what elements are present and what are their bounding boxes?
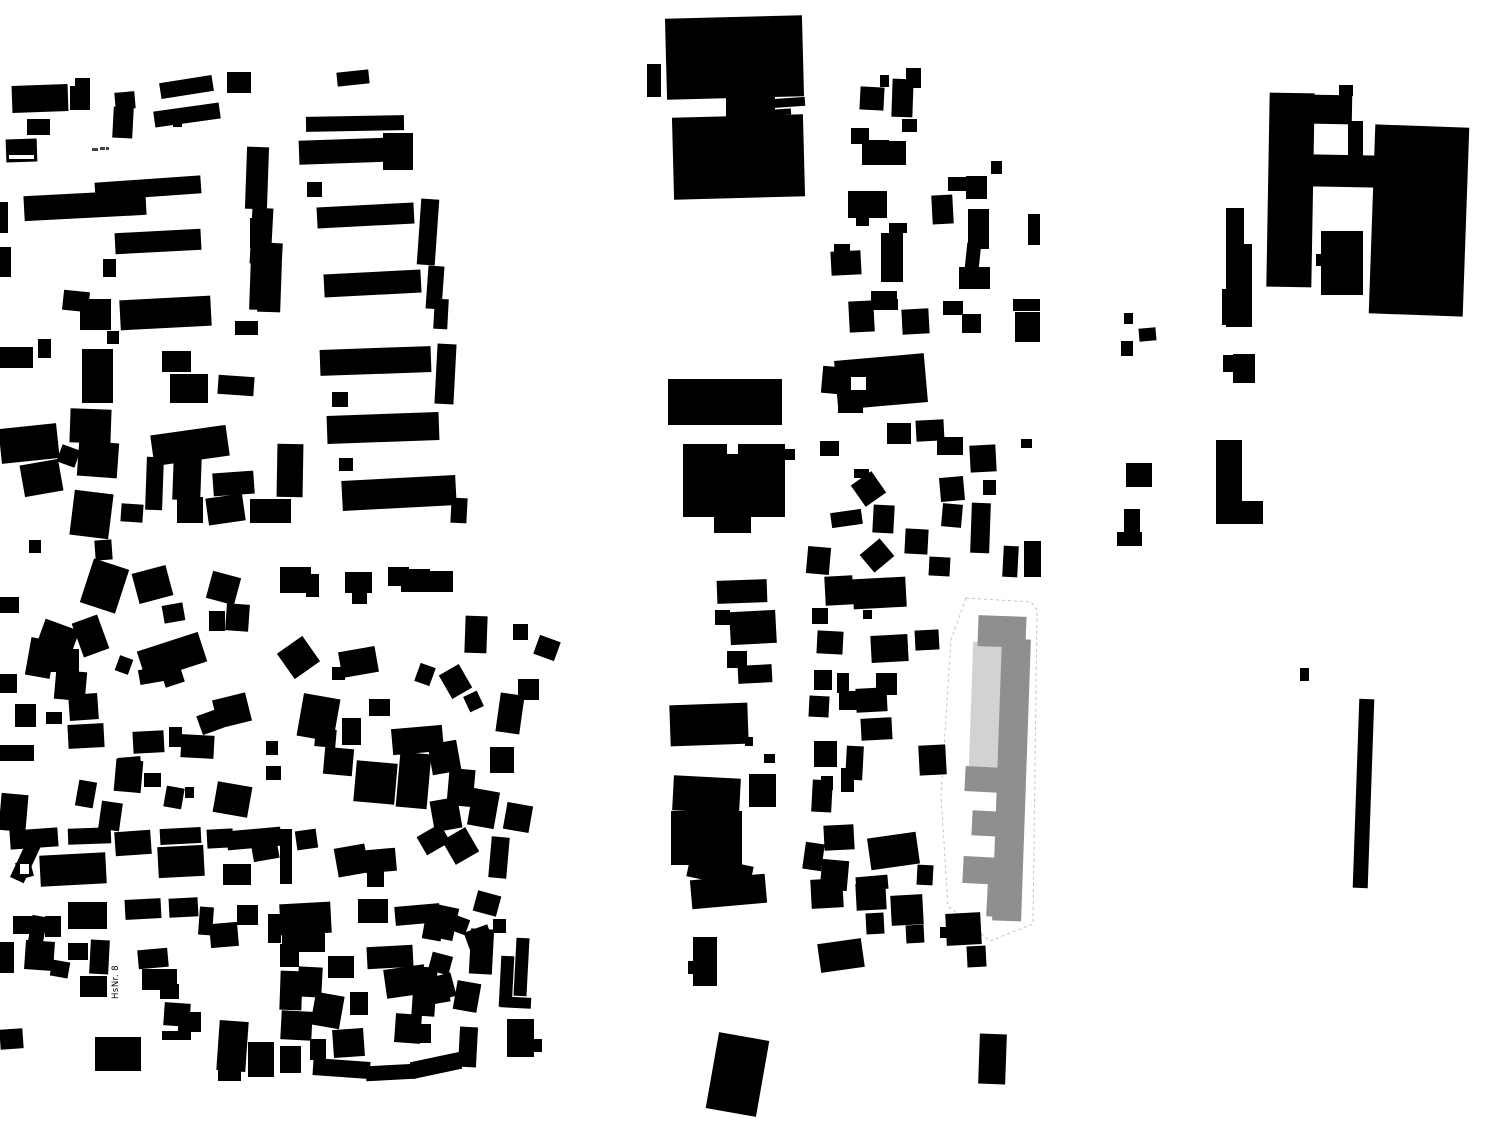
building-footprint bbox=[218, 1069, 241, 1081]
building-footprint bbox=[824, 575, 853, 605]
building-footprint bbox=[334, 844, 370, 878]
house-number-label: HsNr. 8 bbox=[111, 965, 121, 999]
building-footprint bbox=[1138, 327, 1156, 341]
building-footprint bbox=[250, 218, 261, 248]
building-footprint bbox=[114, 830, 152, 856]
building-footprint bbox=[943, 301, 963, 315]
building-footprint bbox=[764, 754, 775, 763]
building-footprint bbox=[1015, 312, 1040, 342]
building-footprint bbox=[715, 610, 730, 625]
building-footprint bbox=[837, 673, 849, 693]
building-footprint bbox=[464, 616, 487, 654]
building-footprint bbox=[821, 366, 852, 395]
building-footprint bbox=[860, 717, 892, 741]
building-footprint bbox=[394, 1013, 422, 1044]
building-footprint bbox=[863, 610, 872, 619]
building-footprint bbox=[180, 734, 214, 759]
site-building-dark bbox=[962, 856, 1004, 885]
building-footprint bbox=[817, 938, 865, 973]
building-footprint bbox=[144, 773, 161, 787]
building-footprint bbox=[1024, 541, 1041, 577]
building-footprint bbox=[369, 699, 390, 716]
building-footprint bbox=[249, 258, 279, 311]
building-footprint bbox=[306, 574, 319, 597]
building-footprint bbox=[729, 610, 777, 645]
building-footprint bbox=[75, 78, 90, 110]
building-footprint bbox=[280, 829, 292, 884]
building-footprint bbox=[162, 602, 186, 623]
building-footprint bbox=[453, 980, 482, 1013]
building-footprint bbox=[1266, 93, 1314, 288]
building-footprint bbox=[266, 766, 281, 780]
building-footprint bbox=[280, 1046, 301, 1073]
building-footprint bbox=[966, 176, 987, 199]
building-footprint bbox=[865, 913, 884, 935]
building-footprint bbox=[966, 946, 986, 968]
tiny-text-mark bbox=[106, 147, 109, 150]
building-footprint bbox=[366, 1064, 417, 1082]
building-footprint bbox=[814, 670, 832, 690]
building-footprint bbox=[816, 630, 843, 654]
building-courtyard bbox=[20, 864, 29, 874]
building-footprint bbox=[39, 852, 107, 886]
building-footprint bbox=[137, 948, 169, 970]
building-footprint bbox=[245, 147, 269, 210]
building-footprint bbox=[401, 569, 430, 592]
building-footprint bbox=[887, 423, 911, 444]
building-footprint bbox=[978, 1034, 1007, 1085]
figure-ground-map: HsNr. 8 bbox=[0, 0, 1500, 1135]
building-footprint bbox=[68, 943, 88, 960]
building-footprint bbox=[488, 836, 510, 878]
building-footprint bbox=[277, 444, 304, 497]
building-footprint bbox=[1223, 355, 1233, 372]
building-footprint bbox=[1310, 95, 1352, 125]
building-footprint bbox=[162, 1031, 191, 1040]
building-footprint bbox=[871, 299, 898, 310]
building-footprint bbox=[169, 727, 182, 747]
building-footprint bbox=[1321, 231, 1363, 295]
building-footprint bbox=[310, 992, 344, 1030]
building-footprint bbox=[1311, 154, 1379, 187]
building-footprint bbox=[812, 608, 828, 624]
building-footprint bbox=[870, 634, 908, 663]
building-footprint bbox=[1241, 501, 1263, 524]
building-footprint bbox=[738, 664, 773, 684]
building-footprint bbox=[1124, 313, 1133, 324]
building-footprint bbox=[500, 996, 532, 1009]
building-footprint bbox=[507, 1019, 534, 1057]
building-footprint bbox=[0, 942, 14, 973]
building-footprint bbox=[306, 115, 404, 132]
building-footprint bbox=[112, 106, 134, 138]
building-footprint bbox=[683, 444, 785, 517]
building-footprint bbox=[49, 649, 79, 672]
building-footprint bbox=[225, 603, 250, 632]
building-footprint bbox=[280, 1010, 312, 1041]
building-footprint bbox=[237, 905, 258, 925]
building-footprint bbox=[46, 712, 62, 724]
site-building-dark bbox=[986, 883, 1018, 918]
building-footprint bbox=[332, 392, 348, 407]
building-footprint bbox=[830, 250, 861, 276]
building-footprint bbox=[959, 267, 990, 289]
building-footprint bbox=[811, 779, 833, 812]
building-footprint bbox=[916, 865, 933, 886]
building-footprint bbox=[89, 940, 110, 975]
building-footprint bbox=[227, 72, 251, 93]
building-footprint bbox=[160, 827, 202, 845]
building-footprint bbox=[672, 775, 741, 813]
building-footprint bbox=[295, 829, 318, 851]
building-footprint bbox=[810, 878, 843, 909]
building-footprint bbox=[162, 351, 191, 372]
building-footprint bbox=[250, 499, 291, 523]
building-footprint bbox=[250, 837, 279, 862]
building-footprint bbox=[50, 960, 71, 979]
building-footprint bbox=[518, 679, 539, 700]
building-footprint bbox=[906, 925, 925, 944]
building-footprint bbox=[223, 864, 251, 885]
building-footprint bbox=[279, 971, 302, 1011]
building-footprint bbox=[490, 747, 514, 773]
building-footprint bbox=[352, 589, 367, 604]
building-footprint bbox=[745, 737, 753, 746]
building-footprint bbox=[1013, 299, 1040, 311]
building-footprint bbox=[0, 247, 11, 277]
building-footprint bbox=[213, 781, 253, 818]
building-footprint bbox=[69, 408, 111, 443]
building-footprint bbox=[94, 539, 112, 560]
building-footprint bbox=[880, 75, 889, 87]
building-footprint bbox=[647, 64, 661, 97]
building-footprint bbox=[929, 556, 951, 576]
building-footprint bbox=[69, 490, 113, 539]
building-footprint bbox=[0, 597, 19, 613]
building-footprint bbox=[172, 456, 202, 501]
building-footprint bbox=[120, 503, 143, 522]
building-footprint bbox=[1002, 546, 1019, 578]
building-footprint bbox=[669, 703, 748, 747]
tiny-text-mark bbox=[92, 148, 98, 151]
building-footprint bbox=[862, 140, 889, 165]
building-footprint bbox=[82, 349, 113, 403]
building-footprint bbox=[80, 976, 107, 997]
building-footprint bbox=[881, 233, 903, 282]
building-footprint bbox=[838, 398, 863, 413]
building-footprint bbox=[939, 476, 965, 502]
building-footprint bbox=[266, 741, 278, 755]
building-courtyard bbox=[727, 444, 738, 454]
building-footprint bbox=[163, 786, 184, 810]
building-footprint bbox=[157, 845, 205, 878]
building-footprint bbox=[205, 494, 245, 526]
building-footprint bbox=[29, 540, 41, 553]
building-footprint bbox=[341, 475, 456, 511]
building-footprint bbox=[107, 331, 119, 344]
building-footprint bbox=[115, 229, 202, 254]
building-footprint bbox=[280, 944, 299, 967]
building-footprint bbox=[1300, 668, 1309, 681]
building-footprint bbox=[876, 673, 897, 695]
building-footprint bbox=[173, 116, 182, 127]
building-footprint bbox=[841, 768, 854, 792]
building-footprint bbox=[67, 723, 104, 749]
building-footprint bbox=[119, 296, 211, 331]
building-footprint bbox=[358, 899, 388, 923]
building-footprint bbox=[1316, 254, 1324, 266]
tiny-text-mark bbox=[100, 147, 105, 150]
building-footprint bbox=[906, 68, 921, 88]
building-footprint bbox=[781, 449, 795, 460]
building-footprint bbox=[533, 1039, 542, 1052]
building-footprint bbox=[888, 141, 906, 165]
building-footprint bbox=[458, 1027, 478, 1068]
building-footprint bbox=[45, 916, 61, 937]
building-footprint bbox=[27, 119, 50, 135]
building-footprint bbox=[433, 299, 449, 330]
building-footprint bbox=[310, 1039, 326, 1060]
building-footprint bbox=[209, 922, 239, 948]
building-footprint bbox=[1021, 439, 1032, 448]
building-footprint bbox=[513, 624, 528, 640]
building-footprint bbox=[132, 730, 164, 754]
building-footprint bbox=[327, 412, 440, 444]
building-footprint bbox=[328, 956, 354, 978]
building-footprint bbox=[1348, 121, 1363, 158]
building-footprint bbox=[77, 441, 119, 479]
building-footprint bbox=[209, 611, 225, 631]
building-footprint bbox=[68, 902, 107, 929]
building-footprint bbox=[95, 1037, 141, 1071]
building-footprint bbox=[668, 379, 782, 425]
building-footprint bbox=[714, 514, 751, 533]
building-footprint bbox=[160, 984, 179, 999]
building-footprint bbox=[0, 793, 29, 832]
building-footprint bbox=[350, 992, 368, 1015]
building-footprint bbox=[0, 674, 17, 693]
building-footprint bbox=[814, 741, 837, 767]
building-footprint bbox=[717, 579, 768, 604]
building-footprint bbox=[970, 503, 991, 554]
building-footprint bbox=[872, 504, 894, 533]
building-footprint bbox=[904, 528, 928, 554]
building-footprint bbox=[169, 897, 199, 917]
building-footprint bbox=[852, 577, 906, 610]
building-footprint bbox=[217, 375, 254, 396]
building-footprint bbox=[665, 15, 804, 100]
building-footprint bbox=[216, 1020, 248, 1072]
building-footprint bbox=[962, 314, 981, 333]
building-footprint bbox=[103, 259, 116, 277]
building-footprint bbox=[1121, 341, 1133, 356]
site-building-dark bbox=[971, 810, 1001, 836]
building-footprint bbox=[940, 927, 949, 938]
building-footprint bbox=[367, 869, 384, 887]
building-footprint bbox=[248, 1042, 274, 1077]
building-footprint bbox=[20, 459, 64, 497]
building-footprint bbox=[342, 718, 361, 745]
building-footprint bbox=[428, 981, 450, 1005]
building-footprint bbox=[855, 882, 886, 911]
building-footprint bbox=[15, 704, 36, 727]
building-footprint bbox=[991, 161, 1002, 174]
building-footprint bbox=[1369, 124, 1470, 316]
building-footprint bbox=[1117, 532, 1142, 546]
building-footprint bbox=[38, 339, 51, 358]
building-footprint bbox=[68, 693, 99, 721]
building-footprint bbox=[353, 760, 397, 804]
building-footprint bbox=[1222, 289, 1246, 325]
building-footprint bbox=[0, 347, 33, 368]
building-footprint bbox=[0, 423, 60, 464]
building-footprint bbox=[80, 299, 111, 330]
building-footprint bbox=[469, 928, 494, 974]
building-footprint bbox=[931, 194, 953, 224]
building-footprint bbox=[672, 114, 805, 199]
building-footprint bbox=[983, 480, 996, 495]
building-footprint bbox=[867, 832, 920, 871]
building-footprint bbox=[332, 667, 345, 680]
building-footprint bbox=[749, 774, 776, 807]
building-footprint bbox=[125, 898, 162, 920]
building-footprint bbox=[969, 444, 996, 472]
building-footprint bbox=[450, 498, 467, 524]
building-footprint bbox=[965, 242, 982, 269]
building-footprint bbox=[0, 1028, 24, 1050]
building-footprint bbox=[1233, 354, 1255, 383]
building-footprint bbox=[493, 919, 506, 933]
building-footprint bbox=[889, 223, 907, 233]
building-footprint bbox=[1339, 85, 1353, 96]
building-footprint bbox=[332, 1028, 365, 1058]
building-footprint bbox=[177, 497, 203, 523]
building-footprint bbox=[918, 744, 947, 775]
building-footprint bbox=[428, 571, 453, 592]
site-building-dark bbox=[964, 766, 1004, 793]
building-footprint bbox=[212, 471, 255, 497]
building-footprint bbox=[937, 437, 963, 455]
building-footprint bbox=[235, 321, 258, 335]
building-footprint bbox=[503, 802, 533, 833]
building-footprint bbox=[12, 84, 69, 113]
building-footprint bbox=[114, 759, 144, 793]
building-footprint bbox=[1126, 463, 1152, 487]
building-footprint bbox=[366, 945, 413, 969]
building-footprint bbox=[170, 374, 208, 403]
building-footprint bbox=[1216, 440, 1242, 524]
building-footprint bbox=[688, 961, 696, 974]
building-courtyard bbox=[9, 155, 34, 159]
building-footprint bbox=[434, 344, 456, 405]
building-footprint bbox=[914, 629, 939, 650]
building-footprint bbox=[320, 346, 432, 376]
building-footprint bbox=[314, 728, 336, 748]
building-footprint bbox=[323, 747, 354, 776]
building-footprint bbox=[859, 86, 884, 110]
building-footprint bbox=[806, 546, 831, 575]
building-footprint bbox=[820, 441, 839, 456]
building-footprint bbox=[941, 503, 963, 528]
building-footprint bbox=[823, 824, 854, 851]
building-footprint bbox=[0, 202, 8, 233]
building-footprint bbox=[419, 1024, 431, 1043]
building-footprint bbox=[856, 216, 869, 226]
building-footprint bbox=[902, 119, 917, 132]
building-footprint bbox=[68, 827, 112, 844]
building-footprint bbox=[0, 745, 34, 761]
building-courtyard bbox=[851, 377, 866, 390]
building-footprint bbox=[1028, 214, 1040, 245]
building-footprint bbox=[726, 95, 756, 117]
building-footprint bbox=[945, 912, 982, 946]
building-footprint bbox=[808, 695, 829, 717]
building-footprint bbox=[307, 182, 322, 197]
building-footprint bbox=[948, 177, 967, 191]
building-footprint bbox=[890, 894, 924, 926]
building-footprint bbox=[693, 937, 717, 986]
building-footprint bbox=[383, 133, 413, 170]
building-footprint bbox=[848, 191, 887, 218]
building-footprint bbox=[339, 458, 353, 471]
building-footprint bbox=[185, 787, 194, 798]
building-footprint bbox=[901, 308, 929, 334]
building-footprint bbox=[163, 1002, 191, 1027]
building-footprint bbox=[396, 752, 432, 809]
